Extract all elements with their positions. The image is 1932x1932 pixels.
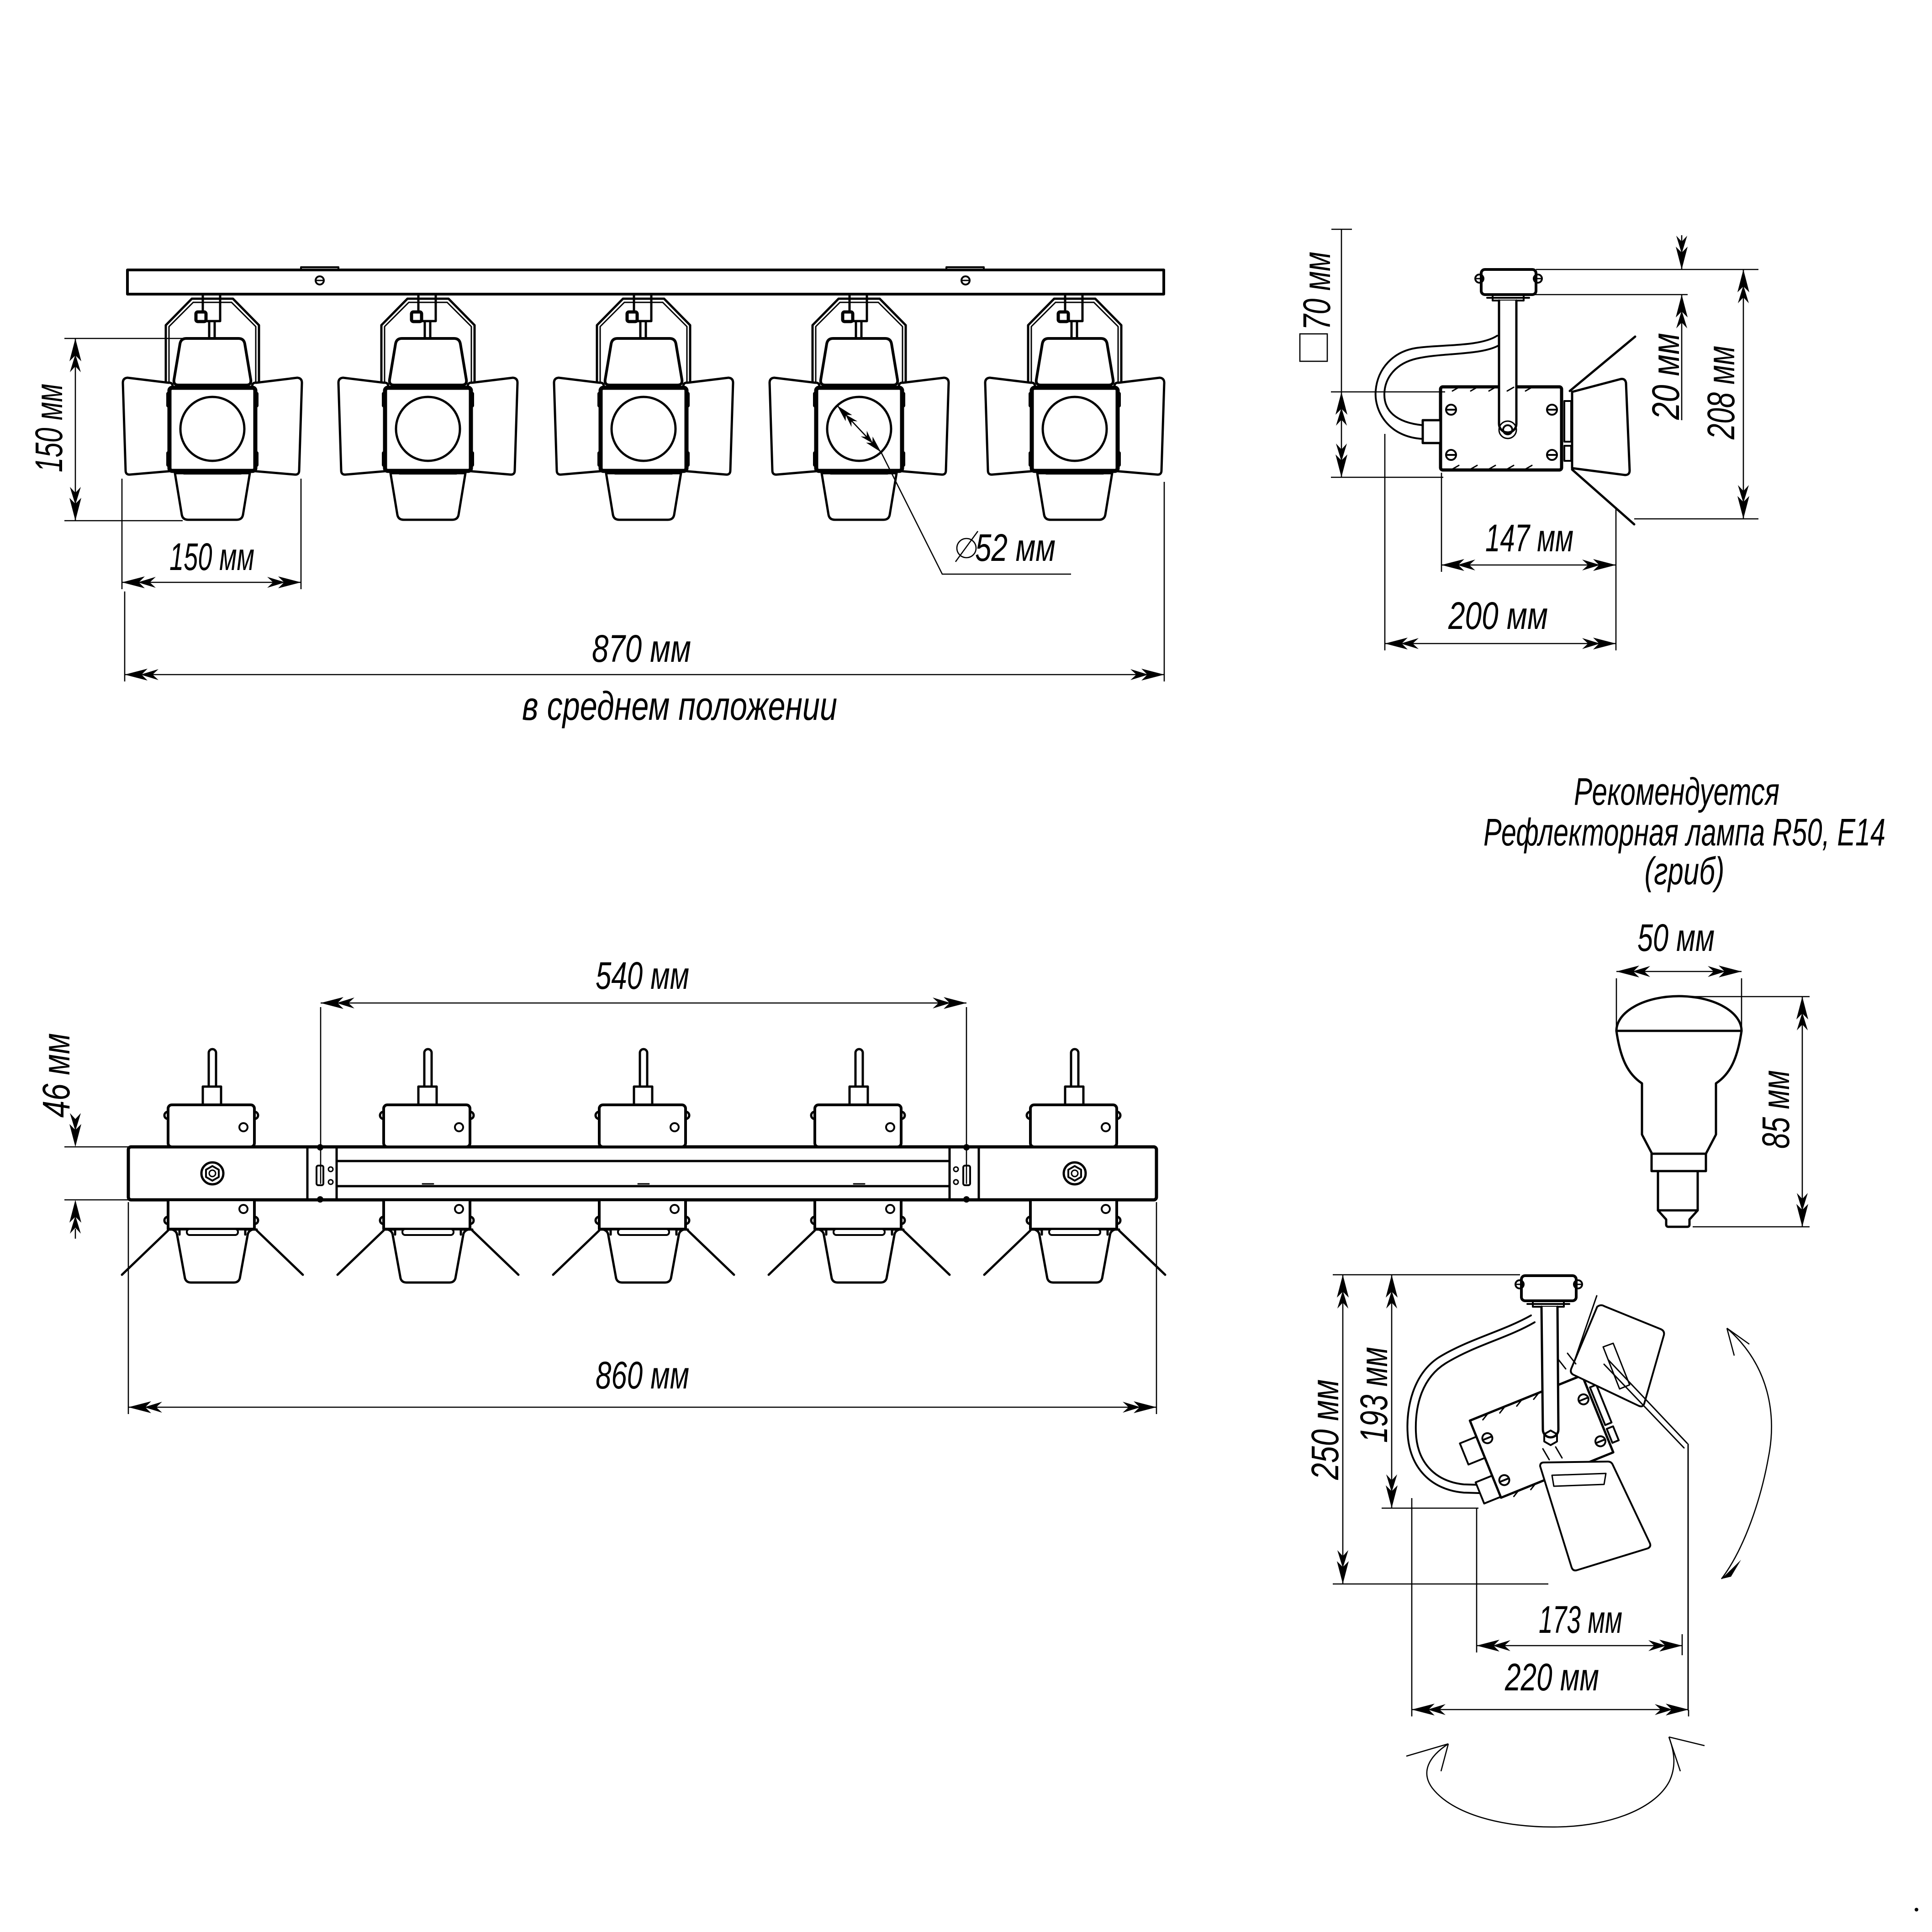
svg-text:Рекомендуется: Рекомендуется <box>1574 770 1779 813</box>
svg-text:52 мм: 52 мм <box>975 526 1056 569</box>
svg-text:70 мм: 70 мм <box>1295 252 1338 330</box>
svg-text:220 мм: 220 мм <box>1504 1656 1599 1699</box>
svg-text:в среднем положении: в среднем положении <box>522 683 837 728</box>
svg-text:540 мм: 540 мм <box>596 954 689 997</box>
svg-text:173 мм: 173 мм <box>1539 1598 1622 1641</box>
svg-text:85 мм: 85 мм <box>1754 1070 1797 1149</box>
svg-text:46 мм: 46 мм <box>35 1033 78 1118</box>
svg-text:150 мм: 150 мм <box>27 384 70 472</box>
svg-text:250 мм: 250 мм <box>1304 1379 1346 1480</box>
svg-text:20 мм: 20 мм <box>1644 333 1687 420</box>
svg-text:208 мм: 208 мм <box>1700 346 1742 440</box>
svg-text:860 мм: 860 мм <box>596 1354 689 1397</box>
svg-text:147 мм: 147 мм <box>1485 517 1573 560</box>
svg-text:870 мм: 870 мм <box>592 627 691 670</box>
svg-text:150 мм: 150 мм <box>169 535 254 578</box>
svg-text:193 мм: 193 мм <box>1352 1347 1395 1443</box>
svg-text:200 мм: 200 мм <box>1448 594 1548 637</box>
svg-text:(гриб): (гриб) <box>1645 850 1725 892</box>
svg-text:Рефлекторная лампа R50, E14: Рефлекторная лампа R50, E14 <box>1483 811 1885 854</box>
svg-text:50 мм: 50 мм <box>1637 916 1715 959</box>
